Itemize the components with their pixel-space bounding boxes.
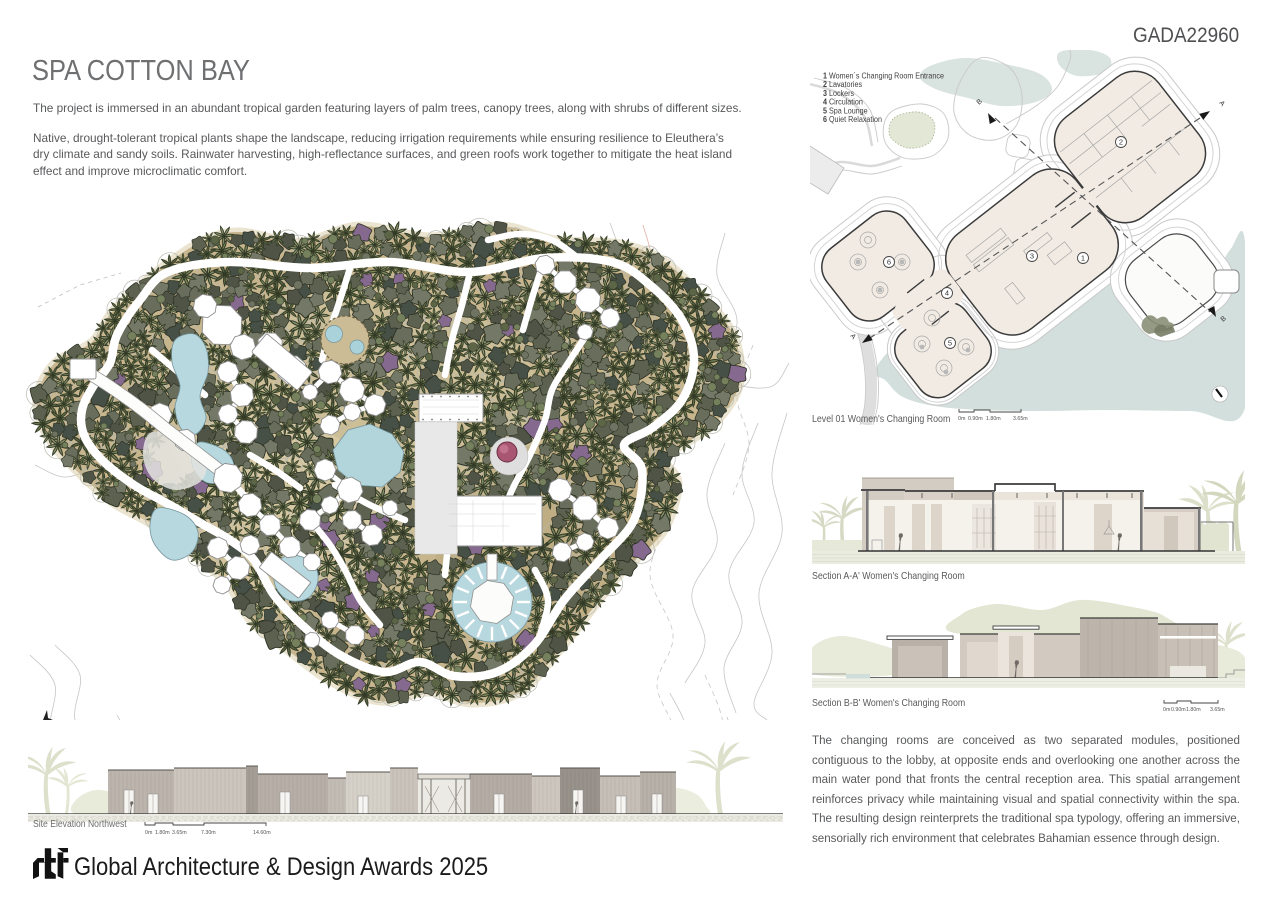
svg-text:2: 2 [1119,138,1123,147]
svg-text:5: 5 [948,339,952,348]
svg-text:0m: 0m [145,830,153,836]
svg-text:0m: 0m [958,416,966,422]
svg-text:1: 1 [1081,254,1085,263]
svg-text:6: 6 [887,258,891,267]
svg-text:4: 4 [945,289,949,298]
svg-text:1.80m: 1.80m [986,416,1001,422]
svg-text:1.80m: 1.80m [1186,707,1201,713]
svg-text:0.90m: 0.90m [1171,707,1186,713]
svg-text:6 Quiet Relaxation: 6 Quiet Relaxation [823,115,882,124]
svg-text:0.90m: 0.90m [968,416,983,422]
svg-text:3.65m: 3.65m [172,830,187,836]
svg-text:A: A [1217,100,1226,108]
svg-text:14.60m: 14.60m [253,830,271,836]
svg-text:3.65m: 3.65m [1013,416,1028,422]
svg-text:7.30m: 7.30m [201,830,216,836]
svg-text:A: A [848,333,857,341]
svg-text:3.65m: 3.65m [1210,707,1225,713]
svg-text:1.80m: 1.80m [155,830,170,836]
svg-text:3: 3 [1030,252,1034,261]
svg-text:0m: 0m [1163,707,1171,713]
